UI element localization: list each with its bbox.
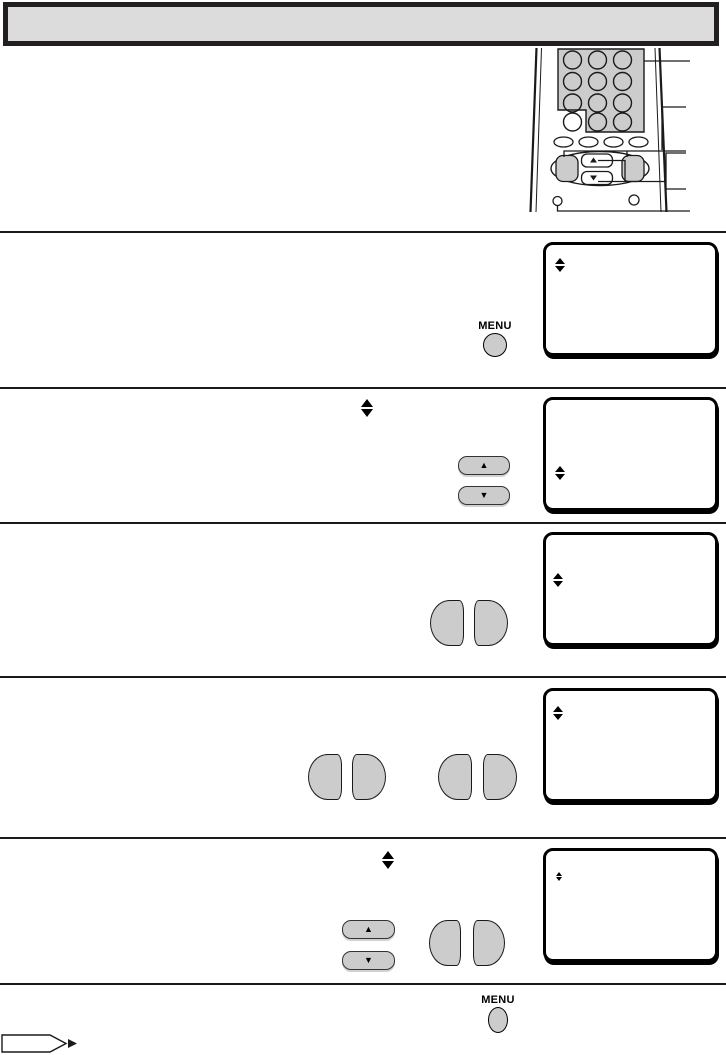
up-down-arrows-icon: [553, 573, 563, 587]
section-divider: [0, 522, 726, 524]
left-button: [438, 754, 472, 800]
down-button: ▼: [458, 486, 510, 505]
small-round-button: [629, 195, 639, 205]
section-divider: [0, 837, 726, 839]
manual-page: MENU ▲ ▼ ▲ ▼ MENU: [0, 0, 726, 1055]
section-divider: [0, 231, 726, 233]
continued-arrow-marker: [0, 1032, 84, 1055]
function-button: [604, 137, 623, 147]
menu-button: MENU: [479, 994, 517, 1033]
up-down-arrows-icon: [361, 399, 373, 417]
menu-button-label: MENU: [476, 320, 514, 332]
up-down-arrows-icon: [553, 706, 563, 720]
section-divider: [0, 676, 726, 678]
tv-screen-box-4: [543, 688, 718, 802]
up-down-arrows-icon: [555, 258, 565, 272]
tv-screen-box-5: [543, 848, 718, 962]
function-button: [579, 137, 598, 147]
section-divider: [0, 983, 726, 985]
tv-screen-box-3: [543, 532, 718, 646]
continued-flag-shape: [2, 1035, 66, 1052]
up-arrow-icon: ▲: [364, 925, 373, 934]
function-button: [629, 137, 648, 147]
up-down-arrows-icon: [382, 851, 394, 869]
right-button: [474, 600, 508, 646]
down-arrow-icon: ▼: [480, 491, 489, 500]
right-arrow-icon: [68, 1039, 77, 1048]
tv-screen-box-2: [543, 397, 718, 511]
left-button: [308, 754, 342, 800]
right-button: [352, 754, 386, 800]
up-button: ▲: [458, 456, 510, 475]
page-title-bar: [3, 2, 719, 46]
menu-button-label: MENU: [479, 994, 517, 1006]
nav-left-button: [556, 156, 578, 182]
nav-down-button: [582, 172, 613, 185]
down-button: ▼: [342, 951, 395, 970]
left-button: [429, 920, 461, 966]
menu-button: MENU: [476, 320, 514, 357]
right-button: [483, 754, 517, 800]
section-divider: [0, 387, 726, 389]
small-round-button: [553, 197, 562, 206]
callout-line: [558, 206, 691, 211]
up-button: ▲: [342, 920, 395, 939]
function-button-row: [554, 137, 648, 147]
extra-round-button: [564, 113, 582, 131]
down-arrow-icon: ▼: [364, 956, 373, 965]
right-button: [473, 920, 505, 966]
menu-button-circle: [483, 333, 507, 357]
function-button: [554, 137, 573, 147]
tv-screen-box-1: [543, 242, 718, 356]
menu-button-circle: [488, 1007, 508, 1033]
callout-line: [662, 107, 686, 150]
up-arrow-icon: ▲: [480, 461, 489, 470]
up-down-arrows-icon: [555, 466, 565, 480]
remote-control-illustration: [525, 45, 726, 215]
up-down-arrows-icon: [556, 872, 562, 881]
left-button: [430, 600, 464, 646]
callout-bracket: [666, 153, 686, 189]
